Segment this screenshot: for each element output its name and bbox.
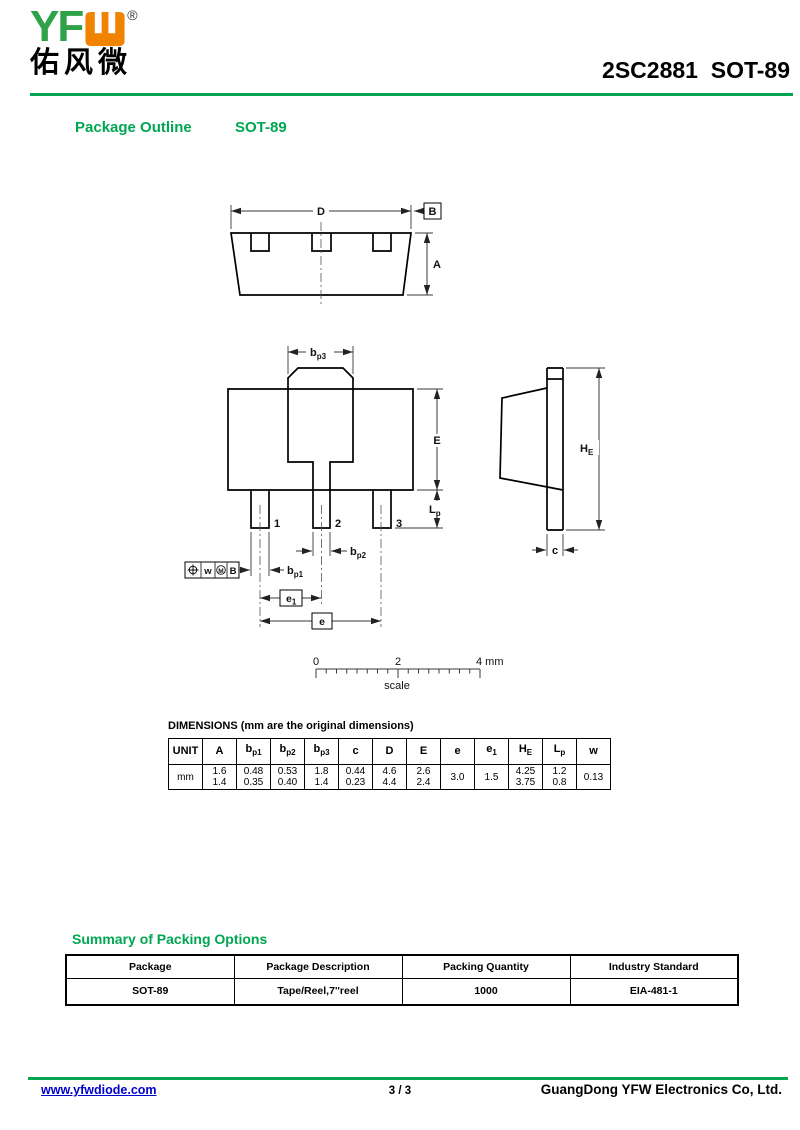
scale-4-label: 4 mm (476, 656, 504, 668)
top-view: D B A (231, 203, 441, 306)
pin-1-label: 1 (274, 518, 280, 530)
dim-col-header: D (373, 739, 407, 765)
logo-text: YF (30, 8, 82, 46)
fcf-tolerance-label: w (203, 566, 212, 577)
dim-value-cell: 0.440.23 (339, 765, 373, 790)
dimensions-title: DIMENSIONS (mm are the original dimensio… (168, 720, 414, 732)
header-rule (30, 93, 793, 96)
packing-header-cell: Packing Quantity (402, 955, 570, 978)
package-outline-drawing: D B A 1 2 3 bp3 (0, 180, 800, 700)
scale-bar: 0 2 4 mm scale (313, 656, 504, 692)
dim-value-cell: 1.81.4 (305, 765, 339, 790)
scale-ticks (316, 669, 480, 678)
packing-heading: Summary of Packing Options (72, 931, 267, 947)
dimensions-table: UNITAbp1bp2bp3cDEee1HELpw mm1.61.40.480.… (168, 738, 611, 790)
dim-label-D: D (317, 206, 325, 218)
dim-col-header: HE (509, 739, 543, 765)
logo-w-icon (85, 12, 125, 46)
fcf-m-label: M (218, 568, 223, 575)
dim-label-Lp-sub: p (436, 509, 441, 518)
dim-unit-cell: mm (169, 765, 203, 790)
dim-col-header: E (407, 739, 441, 765)
packing-header-row: PackagePackage DescriptionPacking Quanti… (66, 955, 738, 978)
dim-value-cell: 1.20.8 (543, 765, 577, 790)
dim-value-cell: 1.5 (475, 765, 509, 790)
dim-value-cell: 3.0 (441, 765, 475, 790)
packing-header-cell: Package (66, 955, 234, 978)
packing-value-cell: SOT-89 (66, 978, 234, 1005)
packing-value-cell: 1000 (402, 978, 570, 1005)
scale-0-label: 0 (313, 656, 319, 668)
logo: YF ® 佑风微 (30, 8, 138, 80)
dim-label-bp2: bp2 (350, 546, 367, 560)
section-heading-package-outline: Package Outline (75, 119, 192, 136)
dim-label-A: A (433, 259, 441, 271)
feature-control-frame: w M B (185, 562, 250, 578)
dim-col-header: Lp (543, 739, 577, 765)
notch-3 (373, 233, 391, 251)
side-view: c HE (500, 368, 605, 557)
dim-col-header: bp2 (271, 739, 305, 765)
dim-col-header: bp3 (305, 739, 339, 765)
dim-label-bp1: bp1 (287, 565, 304, 579)
dim-label-HE-sub: E (588, 448, 594, 457)
scale-caption: scale (384, 680, 410, 692)
packing-value-cell: Tape/Reel,7''reel (234, 978, 402, 1005)
packing-value-row: SOT-89Tape/Reel,7''reel1000EIA-481-1 (66, 978, 738, 1005)
front-view: 1 2 3 bp3 E Lp bp2 bp1 (185, 345, 446, 629)
pin-2-label: 2 (335, 518, 341, 530)
dim-value-cell: 4.64.4 (373, 765, 407, 790)
dim-value-cell: 2.62.4 (407, 765, 441, 790)
packing-value-cell: EIA-481-1 (570, 978, 738, 1005)
dim-label-e: e (319, 616, 325, 628)
part-title: 2SC2881 SOT-89 (602, 57, 790, 84)
section-heading-package-name: SOT-89 (235, 119, 287, 136)
scale-2-label: 2 (395, 656, 401, 668)
footer-rule (28, 1077, 788, 1080)
fcf-datum-label: B (230, 566, 237, 577)
dim-label-c: c (552, 545, 558, 557)
dimensions-header-row: UNITAbp1bp2bp3cDEee1HELpw (169, 739, 611, 765)
dim-label-HE-main: H (580, 443, 588, 455)
dim-col-header: e (441, 739, 475, 765)
notch-1 (251, 233, 269, 251)
dim-label-E: E (433, 435, 440, 447)
dimensions-value-row: mm1.61.40.480.350.530.401.81.40.440.234.… (169, 765, 611, 790)
packing-table: PackagePackage DescriptionPacking Quanti… (65, 954, 739, 1006)
dim-value-cell: 4.253.75 (509, 765, 543, 790)
dim-value-cell: 0.530.40 (271, 765, 305, 790)
dim-col-header: UNIT (169, 739, 203, 765)
dim-label-bp2-sub: p2 (357, 551, 367, 560)
dim-label-e1-sub: 1 (292, 598, 297, 607)
dim-col-header: bp1 (237, 739, 271, 765)
dim-col-header: c (339, 739, 373, 765)
dim-label-bp3-sub: p3 (317, 352, 327, 361)
dim-value-cell: 0.480.35 (237, 765, 271, 790)
datum-B-label: B (429, 206, 437, 218)
registered-icon: ® (127, 8, 137, 22)
company-name: GuangDong YFW Electronics Co, Ltd. (541, 1082, 782, 1097)
packing-header-cell: Industry Standard (570, 955, 738, 978)
notch-2 (312, 233, 331, 251)
packing-header-cell: Package Description (234, 955, 402, 978)
dim-label-bp1-sub: p1 (294, 570, 304, 579)
logo-chinese: 佑风微 (30, 46, 138, 80)
dim-col-header: e1 (475, 739, 509, 765)
dim-value-cell: 1.61.4 (203, 765, 237, 790)
dim-col-header: A (203, 739, 237, 765)
dim-value-cell: 0.13 (577, 765, 611, 790)
dim-col-header: w (577, 739, 611, 765)
datasheet-page: YF ® 佑风微 2SC2881 SOT-89 Package Outline … (0, 0, 800, 1130)
